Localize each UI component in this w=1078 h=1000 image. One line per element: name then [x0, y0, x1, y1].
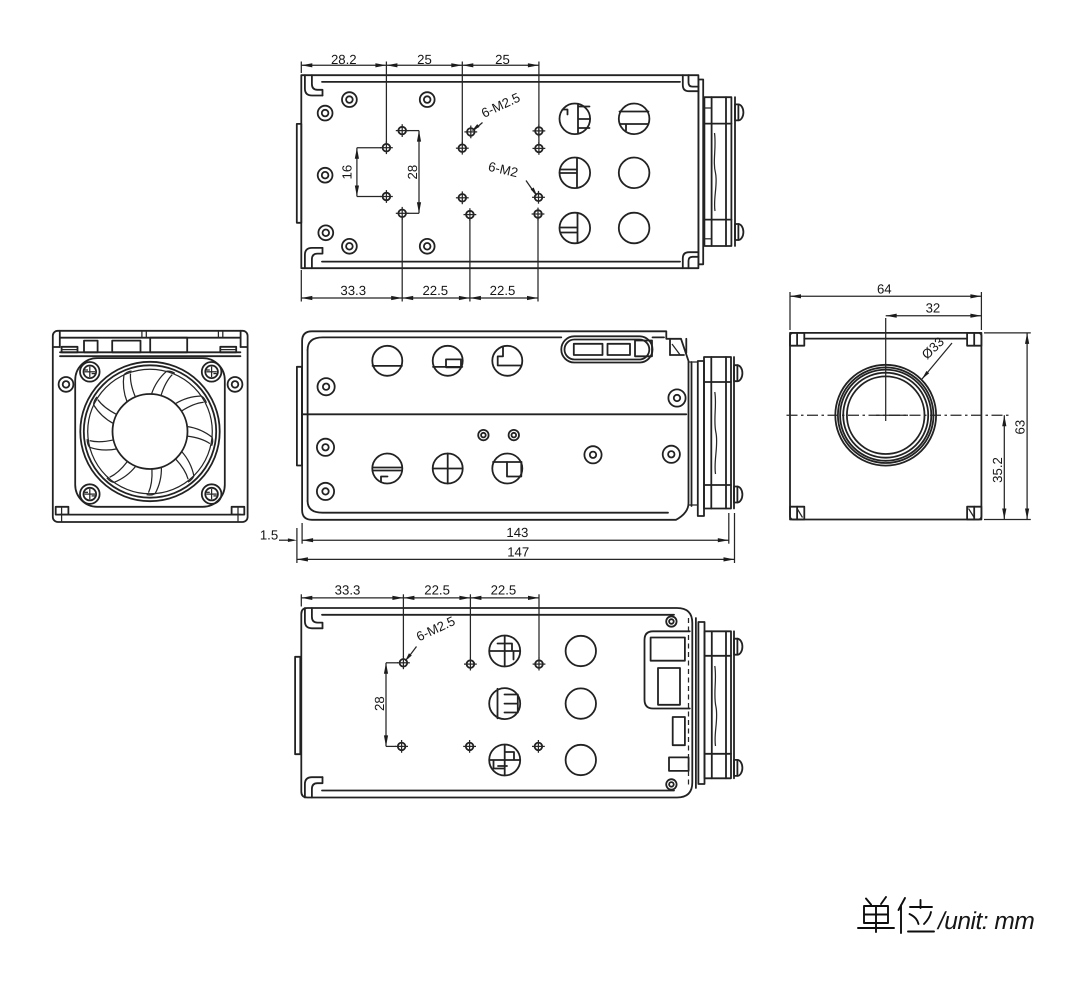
svg-text:22.5: 22.5 — [424, 582, 450, 597]
svg-text:143: 143 — [506, 525, 528, 540]
svg-text:22.5: 22.5 — [422, 283, 448, 298]
svg-text:/unit: mm: /unit: mm — [936, 908, 1034, 935]
svg-text:28: 28 — [372, 696, 387, 711]
svg-text:16: 16 — [340, 165, 355, 180]
svg-text:147: 147 — [507, 544, 529, 559]
svg-text:33.3: 33.3 — [335, 582, 361, 597]
svg-text:28.2: 28.2 — [331, 52, 357, 67]
svg-text:32: 32 — [926, 300, 941, 315]
svg-text:63: 63 — [1013, 420, 1028, 435]
svg-text:35.2: 35.2 — [990, 457, 1005, 483]
svg-text:33.3: 33.3 — [340, 283, 366, 298]
svg-text:25: 25 — [495, 52, 510, 67]
svg-text:64: 64 — [877, 281, 892, 296]
svg-text:22.5: 22.5 — [490, 283, 516, 298]
svg-text:25: 25 — [417, 52, 432, 67]
svg-text:28: 28 — [405, 165, 420, 180]
svg-text:22.5: 22.5 — [491, 582, 517, 597]
svg-text:1.5: 1.5 — [260, 528, 278, 543]
